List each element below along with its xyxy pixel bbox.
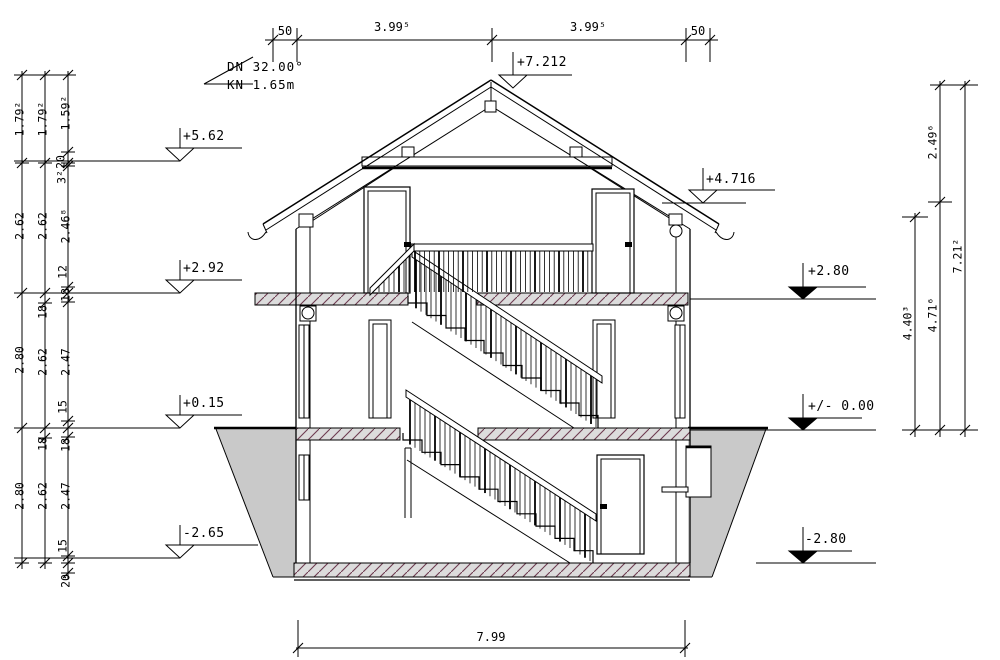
dim-top-2: 3.99⁵ [570, 21, 606, 33]
dim-left-inner-8: 18 [60, 438, 72, 452]
dim-left-inner-3: 2.46⁸ [60, 209, 72, 244]
dim-left-outer-1: 2.62 [14, 212, 26, 240]
dim-top-3: 50 [691, 25, 705, 37]
dim-top-1: 3.99⁵ [374, 21, 410, 33]
level-eaves-right: +4.716 [706, 173, 756, 186]
dim-left-outer-3: 2.80 [14, 482, 26, 510]
dim-left-inner-7: 15 [57, 400, 69, 414]
dim-left-inner-11: 20 [60, 574, 72, 588]
dim-bottom: 7.99 [477, 631, 506, 643]
section-drawing-canvas: 50 3.99⁵ 3.99⁵ 50 7.99 DN 32.00° KN 1.65… [0, 0, 1000, 660]
dim-left-outer-0: 1.79² [14, 102, 26, 137]
dim-right-middle-1: 4.71⁶ [927, 298, 939, 333]
dim-left-inner-9: 2.47 [60, 482, 72, 510]
dim-right-outer: 7.21² [952, 239, 964, 274]
dim-left-middle-3: 2.62 [37, 348, 49, 376]
level-upper-floor-left: +2.92 [183, 262, 225, 275]
level-basement-slab-right: -2.80 [805, 533, 847, 546]
level-ridge: +7.212 [517, 56, 567, 69]
dim-left-middle-4: 18 [37, 437, 49, 451]
dim-left-middle-0: 1.79² [37, 102, 49, 137]
dim-left-middle-5: 2.62 [37, 482, 49, 510]
dim-left-inner-2: 3² [56, 170, 68, 184]
dim-left-middle-2: 18 [37, 305, 49, 319]
level-ground-zero-right: +/- 0.00 [808, 400, 875, 413]
dim-left-inner-1: 20 [55, 155, 67, 169]
dim-left-outer-2: 2.80 [14, 346, 26, 374]
level-upper-slab-right: +2.80 [808, 265, 850, 278]
dim-left-inner-6: 2.47 [60, 348, 72, 376]
dim-right-middle-0: 2.49⁶ [927, 125, 939, 160]
dim-left-middle-1: 2.62 [37, 212, 49, 240]
level-ground-floor-left: +0.15 [183, 397, 225, 410]
building-section-drawing [0, 0, 1000, 660]
roof-pitch-note: DN 32.00° [227, 61, 304, 74]
dim-right-inner: 4.40³ [902, 306, 914, 341]
level-eaves-left: +5.62 [183, 130, 225, 143]
dim-left-inner-0: 1.59² [60, 96, 72, 131]
roof-knee-note: KN 1.65m [227, 79, 295, 92]
dim-left-inner-4: 12 [57, 265, 69, 279]
dim-top-0: 50 [278, 25, 292, 37]
dim-left-inner-10: 15 [57, 539, 69, 553]
level-basement-floor-left: -2.65 [183, 527, 225, 540]
dim-left-inner-5: 18 [60, 288, 72, 302]
